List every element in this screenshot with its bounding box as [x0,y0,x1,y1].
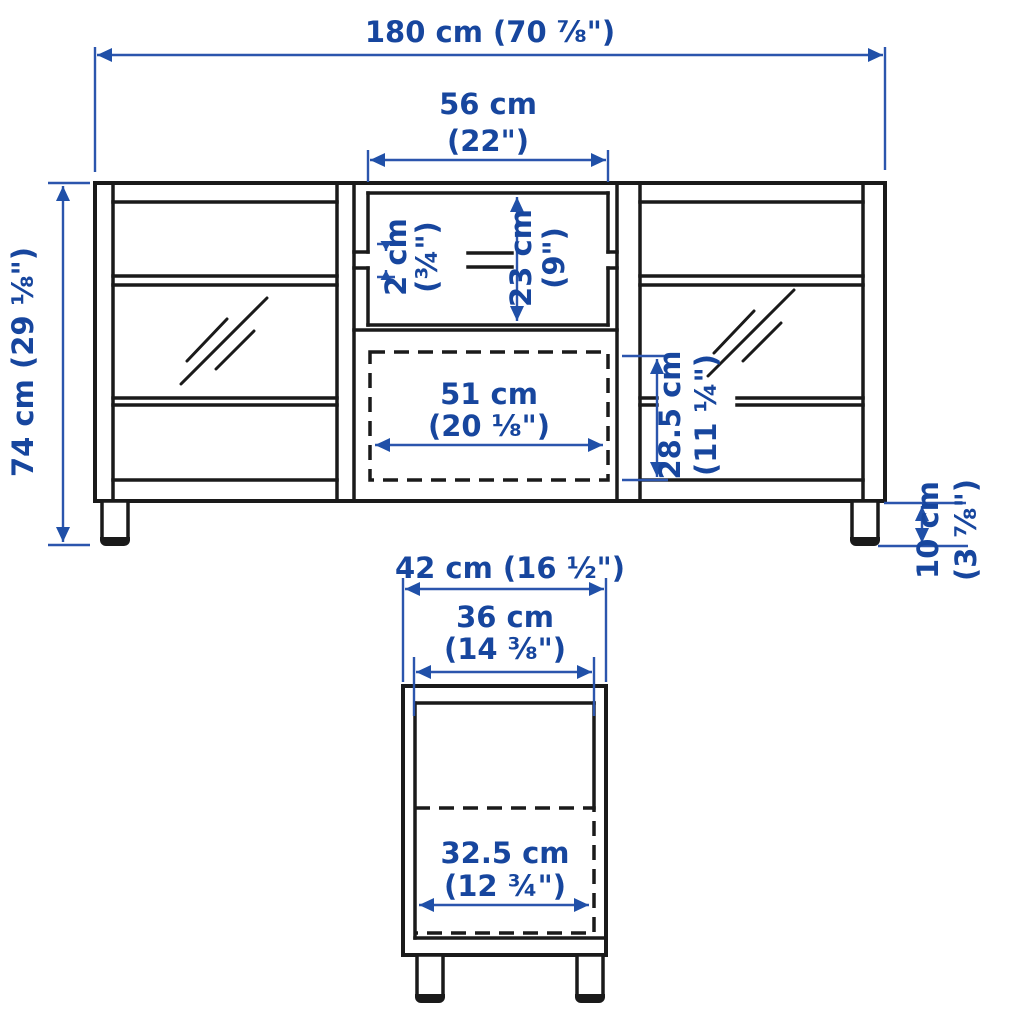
left-glass-door [113,202,337,480]
dim-inner-depth: 36 cm (14 ⅜") [414,600,594,716]
drawer-depth-label-inches: (12 ¾") [444,869,566,903]
inner-depth-label-inches: (14 ⅜") [444,632,566,666]
right-foot [850,537,880,546]
right-leg [852,501,878,539]
shelf-thickness-label: 2 cm [379,218,413,296]
drawer-height-label: 28.5 cm [653,350,687,479]
side-left-leg [417,955,443,996]
side-legs [415,955,605,1003]
side-right-foot [575,994,605,1003]
opening-height-label: 23 cm [504,209,538,307]
dimension-diagram: 180 cm (70 ⅞") 56 cm (22") 2 cm (¾") 23 … [0,0,1024,1024]
side-view: 42 cm (16 ½") 36 cm (14 ⅜") 32.5 cm (12 … [395,551,625,1003]
dim-opening-height: 23 cm (9") [504,197,571,321]
left-foot [100,537,130,546]
dim-leg-height: 10 cm (3 ⅞") [878,479,983,581]
dim-drawer-height: 28.5 cm (11 ¼") [622,350,723,480]
diagram-svg: 180 cm (70 ⅞") 56 cm (22") 2 cm (¾") 23 … [0,0,1024,1024]
side-body [403,686,606,955]
side-right-leg [577,955,603,996]
glass-reflection-icon [181,298,267,384]
opening-width-label: 56 cm [439,87,537,121]
leg-height-label: 10 cm [911,481,945,579]
overall-height-label: 74 cm (29 ⅛") [6,247,40,477]
drawer-depth-label: 32.5 cm [440,836,569,870]
front-view: 180 cm (70 ⅞") 56 cm (22") 2 cm (¾") 23 … [6,15,983,581]
cabinet-outline [95,183,885,501]
cabinet-body [95,183,885,501]
leg-height-label-inches: (3 ⅞") [949,479,983,581]
front-legs [100,501,880,546]
overall-depth-label: 42 cm (16 ½") [395,551,625,585]
drawer-width-label: 51 cm [440,377,538,411]
opening-width-label-inches: (22") [447,124,529,158]
drawer-height-label-inches: (11 ¼") [689,354,723,476]
dim-overall-height: 74 cm (29 ⅛") [6,183,90,545]
shelf-thickness-label-inches: (¾") [410,221,444,293]
side-left-foot [415,994,445,1003]
overall-width-label: 180 cm (70 ⅞") [365,15,615,49]
side-outline [403,686,606,955]
drawer-width-label-inches: (20 ⅛") [428,409,550,443]
dim-shelf-thickness: 2 cm (¾") [377,218,444,296]
dim-drawer-depth: 32.5 cm (12 ¾") [419,836,589,905]
left-leg [102,501,128,539]
opening-height-label-inches: (9") [537,227,571,289]
dim-drawer-width: 51 cm (20 ⅛") [375,377,603,445]
inner-depth-label: 36 cm [456,600,554,634]
dim-opening-width: 56 cm (22") [368,87,608,182]
